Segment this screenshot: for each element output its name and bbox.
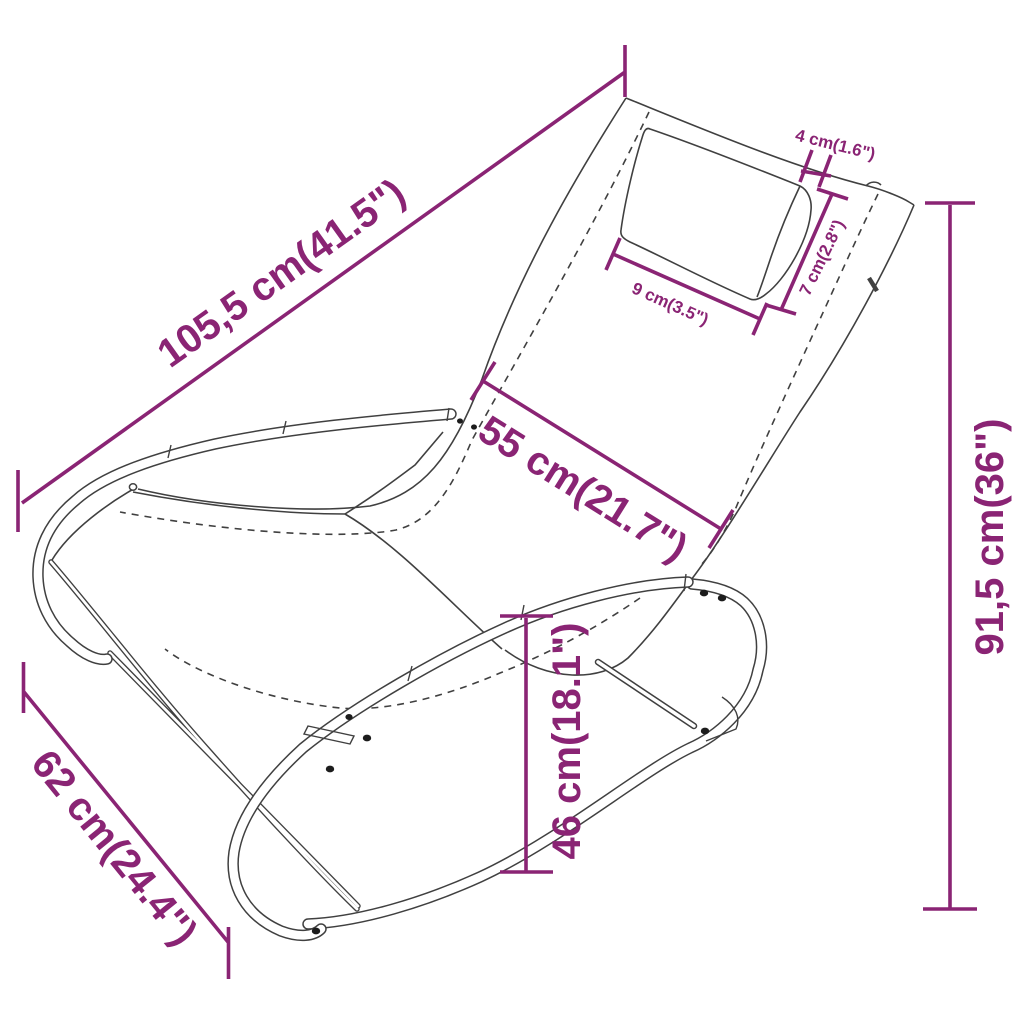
svg-text:46 cm(18.1"): 46 cm(18.1") [545,623,589,860]
svg-text:91,5 cm(36"): 91,5 cm(36") [968,419,1012,656]
